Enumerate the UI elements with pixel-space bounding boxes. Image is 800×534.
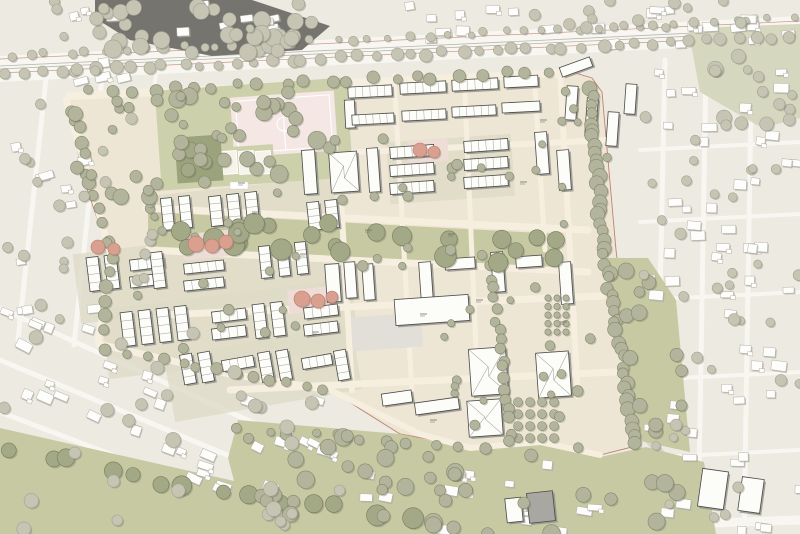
tree-icon xyxy=(243,433,253,443)
tree-icon xyxy=(623,350,638,365)
house-wing xyxy=(693,93,698,97)
tree-icon xyxy=(336,36,342,42)
tree-icon xyxy=(112,96,122,106)
tree-icon xyxy=(710,18,718,26)
tree-icon xyxy=(587,108,598,119)
tree-icon xyxy=(86,170,96,180)
tree-icon xyxy=(35,299,47,311)
tree-icon xyxy=(174,135,189,150)
tree-icon xyxy=(554,43,566,55)
tree-icon xyxy=(683,3,692,12)
tree-icon xyxy=(399,262,406,269)
house xyxy=(737,526,746,534)
tree-icon xyxy=(108,125,117,134)
tree-icon xyxy=(126,87,137,98)
building xyxy=(394,294,470,325)
tree-icon xyxy=(731,49,745,63)
house xyxy=(739,453,749,462)
tree-icon xyxy=(99,280,113,294)
house-wing xyxy=(76,17,82,22)
tree-icon xyxy=(99,325,109,335)
tree-icon xyxy=(735,17,746,28)
tree-icon xyxy=(766,318,775,327)
tree-icon xyxy=(271,239,292,260)
tree-icon xyxy=(348,36,358,46)
tree-icon xyxy=(574,118,581,125)
tree-icon xyxy=(219,235,233,249)
tree-icon xyxy=(545,329,551,335)
tree-icon xyxy=(564,19,575,30)
tree-icon xyxy=(554,329,560,335)
house-wing xyxy=(751,283,756,287)
tree-icon xyxy=(232,59,242,69)
tree-icon xyxy=(176,92,185,101)
tree-icon xyxy=(320,214,338,232)
tree-icon xyxy=(620,21,628,29)
tree-icon xyxy=(503,27,510,34)
tree-icon xyxy=(774,98,785,109)
tree-icon xyxy=(529,9,540,20)
tree-icon xyxy=(292,0,305,10)
tree-icon xyxy=(775,374,787,386)
tree-icon xyxy=(557,369,566,378)
tree-icon xyxy=(115,338,127,350)
tree-icon xyxy=(666,37,675,46)
tree-icon xyxy=(709,513,718,522)
tree-icon xyxy=(547,231,564,248)
tree-icon xyxy=(452,159,463,170)
house xyxy=(405,1,415,10)
house xyxy=(663,122,673,129)
tree-icon xyxy=(198,176,210,188)
tree-icon xyxy=(264,156,275,167)
tree-icon xyxy=(373,254,381,262)
tree-icon xyxy=(538,434,547,443)
tree-icon xyxy=(288,452,304,468)
tree-icon xyxy=(545,341,555,351)
tree-icon xyxy=(305,495,323,513)
tree-icon xyxy=(714,33,726,45)
tree-icon xyxy=(558,183,565,190)
tree-icon xyxy=(406,49,415,58)
house-wing xyxy=(657,15,662,19)
tree-icon xyxy=(458,46,471,59)
tree-icon xyxy=(669,433,677,441)
tree-icon xyxy=(98,308,111,321)
tree-icon xyxy=(563,312,569,318)
tree-icon xyxy=(757,86,768,97)
tree-icon xyxy=(639,270,648,279)
tree-icon xyxy=(670,21,677,28)
tree-icon xyxy=(424,73,436,85)
tree-icon xyxy=(198,279,208,289)
tree-icon xyxy=(470,420,480,430)
tree-icon xyxy=(8,53,17,62)
tree-icon xyxy=(647,40,658,51)
house xyxy=(691,230,706,240)
tree-icon xyxy=(368,224,386,242)
tree-icon xyxy=(526,410,535,419)
tree-icon xyxy=(151,213,158,220)
tree-icon xyxy=(171,222,190,241)
tree-icon xyxy=(665,500,674,509)
tree-icon xyxy=(538,410,547,419)
tree-icon xyxy=(35,99,45,109)
tree-icon xyxy=(563,303,569,309)
tree-icon xyxy=(294,291,310,307)
tree-icon xyxy=(519,67,531,79)
masterplan-screenshot xyxy=(0,0,800,534)
tree-icon xyxy=(475,46,484,55)
tree-icon xyxy=(545,303,551,309)
tree-icon xyxy=(563,320,569,326)
tree-icon xyxy=(545,320,551,326)
tree-icon xyxy=(287,495,299,507)
tree-icon xyxy=(403,508,424,529)
tree-icon xyxy=(180,359,189,368)
tree-icon xyxy=(132,38,148,54)
tree-icon xyxy=(495,324,505,334)
house xyxy=(774,83,789,93)
tree-icon xyxy=(496,334,506,344)
house-wing xyxy=(18,148,24,153)
tree-icon xyxy=(179,120,187,128)
tree-icon xyxy=(143,352,152,361)
tree-icon xyxy=(447,320,454,327)
tree-icon xyxy=(71,64,83,76)
tree-icon xyxy=(62,237,73,248)
tree-icon xyxy=(107,85,119,97)
tree-icon xyxy=(459,483,473,497)
tree-icon xyxy=(424,472,435,483)
tree-icon xyxy=(216,485,230,499)
tree-icon xyxy=(735,117,748,130)
tree-icon xyxy=(529,230,545,246)
tree-icon xyxy=(246,25,254,33)
tree-icon xyxy=(340,77,351,88)
tree-icon xyxy=(520,43,531,54)
tree-icon xyxy=(526,434,535,443)
house xyxy=(177,27,190,36)
tree-icon xyxy=(597,248,607,258)
tree-icon xyxy=(498,384,510,396)
tree-icon xyxy=(185,46,198,59)
tree-icon xyxy=(576,43,586,53)
house xyxy=(65,201,76,209)
tree-icon xyxy=(172,484,186,498)
house xyxy=(360,494,373,502)
tree-icon xyxy=(399,184,407,192)
tree-icon xyxy=(448,467,461,480)
tree-icon xyxy=(126,468,140,482)
tree-icon xyxy=(287,13,303,29)
tree-icon xyxy=(297,471,315,489)
tree-icon xyxy=(400,438,411,449)
tree-icon xyxy=(126,113,137,124)
tree-icon xyxy=(263,482,278,497)
house xyxy=(760,524,771,533)
tree-icon xyxy=(79,47,88,56)
tree-icon xyxy=(707,365,715,373)
house xyxy=(505,480,515,487)
tree-icon xyxy=(538,27,545,34)
tree-icon xyxy=(640,111,651,122)
tree-icon xyxy=(447,521,460,534)
tree-icon xyxy=(495,343,506,354)
tree-icon xyxy=(445,245,455,255)
tree-icon xyxy=(266,501,281,516)
tree-icon xyxy=(143,185,153,195)
tree-icon xyxy=(425,517,441,533)
tree-icon xyxy=(377,509,390,522)
tree-icon xyxy=(397,478,414,495)
tree-icon xyxy=(312,429,320,437)
tree-icon xyxy=(477,69,489,81)
tree-icon xyxy=(337,195,347,205)
tree-icon xyxy=(195,62,203,70)
building xyxy=(697,468,728,509)
tree-icon xyxy=(223,13,236,26)
tree-icon xyxy=(99,344,111,356)
tree-icon xyxy=(291,322,299,330)
tree-icon xyxy=(341,430,353,442)
tree-icon xyxy=(603,153,612,162)
tree-icon xyxy=(760,117,774,131)
house-wing xyxy=(761,143,767,148)
tree-icon xyxy=(112,515,123,526)
tree-icon xyxy=(244,213,265,234)
tree-icon xyxy=(771,164,781,174)
tree-icon xyxy=(327,76,339,88)
tree-icon xyxy=(532,166,540,174)
tree-icon xyxy=(598,40,611,53)
house xyxy=(649,290,664,301)
house xyxy=(733,397,744,404)
house xyxy=(706,203,717,213)
tree-icon xyxy=(265,267,274,276)
tree-icon xyxy=(560,220,567,227)
tree-icon xyxy=(554,320,560,326)
building xyxy=(502,101,540,113)
tree-icon xyxy=(526,398,535,407)
tree-icon xyxy=(155,59,166,70)
tree-icon xyxy=(271,44,284,57)
tree-icon xyxy=(303,227,320,244)
tree-icon xyxy=(492,304,502,314)
tree-icon xyxy=(656,475,673,492)
tree-icon xyxy=(754,260,762,268)
tree-icon xyxy=(547,391,554,398)
tree-icon xyxy=(428,146,440,158)
tree-icon xyxy=(530,283,540,293)
house xyxy=(766,390,775,397)
tree-icon xyxy=(260,327,270,337)
tree-icon xyxy=(24,494,38,508)
tree-icon xyxy=(561,87,570,96)
tree-icon xyxy=(236,391,246,401)
tree-icon xyxy=(545,295,551,301)
house-wing xyxy=(726,249,731,253)
building xyxy=(301,150,317,195)
tree-icon xyxy=(225,123,236,134)
house xyxy=(687,221,701,231)
tree-icon xyxy=(20,153,31,164)
house-wing xyxy=(659,74,664,79)
tree-icon xyxy=(441,333,448,340)
tree-icon xyxy=(572,386,583,397)
building xyxy=(419,262,434,303)
tree-icon xyxy=(305,16,317,28)
house-wing xyxy=(748,352,753,356)
tree-icon xyxy=(783,114,795,126)
house xyxy=(763,347,776,357)
building xyxy=(606,112,619,147)
tree-icon xyxy=(497,360,508,371)
tree-icon xyxy=(439,494,452,507)
tree-icon xyxy=(280,420,294,434)
tree-icon xyxy=(83,85,92,94)
tree-icon xyxy=(670,348,683,361)
tree-icon xyxy=(766,34,777,45)
house-wing xyxy=(599,509,604,513)
house xyxy=(542,460,553,470)
tree-icon xyxy=(248,399,262,413)
tree-icon xyxy=(308,131,326,149)
tree-icon xyxy=(228,365,241,378)
house-wing xyxy=(661,12,666,16)
tree-icon xyxy=(206,83,217,94)
tree-icon xyxy=(553,25,561,33)
house xyxy=(771,360,787,372)
tree-icon xyxy=(681,176,691,186)
tree-icon xyxy=(59,264,68,273)
tree-icon xyxy=(234,228,241,235)
tree-icon xyxy=(250,78,262,90)
tree-icon xyxy=(303,382,312,391)
house xyxy=(702,123,717,131)
tree-icon xyxy=(311,294,325,308)
tree-icon xyxy=(233,79,242,88)
house-wing xyxy=(461,17,466,21)
tree-icon xyxy=(257,95,271,109)
tree-icon xyxy=(788,90,797,99)
tree-icon xyxy=(334,485,345,496)
tree-icon xyxy=(110,61,123,74)
tree-icon xyxy=(281,377,290,386)
tree-icon xyxy=(94,203,105,214)
tree-icon xyxy=(139,273,148,282)
house xyxy=(240,14,253,22)
tree-icon xyxy=(392,226,411,245)
tree-icon xyxy=(273,189,281,197)
tree-icon xyxy=(294,55,306,67)
tree-icon xyxy=(232,102,241,111)
tree-icon xyxy=(558,117,566,125)
tree-icon xyxy=(224,219,233,228)
tree-icon xyxy=(38,66,48,76)
tree-icon xyxy=(423,451,434,462)
tree-icon xyxy=(275,516,286,527)
tree-icon xyxy=(679,291,689,301)
tree-icon xyxy=(518,497,530,509)
house xyxy=(664,248,675,258)
tree-icon xyxy=(161,390,172,401)
tree-icon xyxy=(289,112,303,126)
tree-icon xyxy=(75,136,88,149)
tree-icon xyxy=(98,3,109,14)
tree-icon xyxy=(178,343,188,353)
tree-icon xyxy=(514,398,523,407)
house xyxy=(666,89,675,97)
tree-icon xyxy=(468,32,474,38)
tree-icon xyxy=(791,14,798,21)
tree-icon xyxy=(652,442,661,451)
house xyxy=(668,198,682,206)
tree-icon xyxy=(709,65,720,76)
tree-icon xyxy=(670,419,682,431)
tree-icon xyxy=(91,240,105,254)
tree-icon xyxy=(504,435,515,446)
tree-icon xyxy=(248,371,259,382)
tree-icon xyxy=(554,412,564,422)
tree-icon xyxy=(33,177,42,186)
tree-icon xyxy=(618,263,634,279)
tree-icon xyxy=(447,173,455,181)
tree-icon xyxy=(320,439,336,455)
tree-icon xyxy=(689,17,699,27)
tree-icon xyxy=(451,382,459,390)
tree-icon xyxy=(648,21,657,30)
tree-icon xyxy=(97,217,107,227)
house-wing xyxy=(759,368,764,372)
tree-icon xyxy=(217,153,231,167)
tree-icon xyxy=(657,215,666,224)
tree-icon xyxy=(569,105,577,113)
tree-icon xyxy=(181,59,191,69)
tree-icon xyxy=(710,190,719,199)
tree-icon xyxy=(503,411,515,423)
house-wing xyxy=(717,259,723,264)
tree-icon xyxy=(608,322,623,337)
tree-icon xyxy=(217,324,225,332)
tree-icon xyxy=(17,522,31,534)
tree-icon xyxy=(628,436,641,449)
tree-icon xyxy=(520,26,528,34)
tree-icon xyxy=(479,27,487,35)
tree-icon xyxy=(231,423,241,433)
tree-icon xyxy=(378,134,388,144)
tree-icon xyxy=(507,297,514,304)
tree-icon xyxy=(140,249,150,259)
tree-icon xyxy=(649,418,663,432)
tree-icon xyxy=(733,482,744,493)
tree-icon xyxy=(783,31,795,43)
tree-icon xyxy=(514,422,523,431)
tree-icon xyxy=(554,303,560,309)
tree-icon xyxy=(480,397,487,404)
tree-icon xyxy=(406,32,415,41)
tree-icon xyxy=(305,35,313,43)
tree-icon xyxy=(525,449,538,462)
tree-icon xyxy=(68,50,77,59)
tree-icon xyxy=(676,365,688,377)
tree-icon xyxy=(585,334,595,344)
tree-icon xyxy=(377,484,388,495)
house-wing xyxy=(694,29,699,33)
tree-icon xyxy=(101,403,114,416)
tree-icon xyxy=(284,31,299,46)
tree-icon xyxy=(576,487,591,502)
